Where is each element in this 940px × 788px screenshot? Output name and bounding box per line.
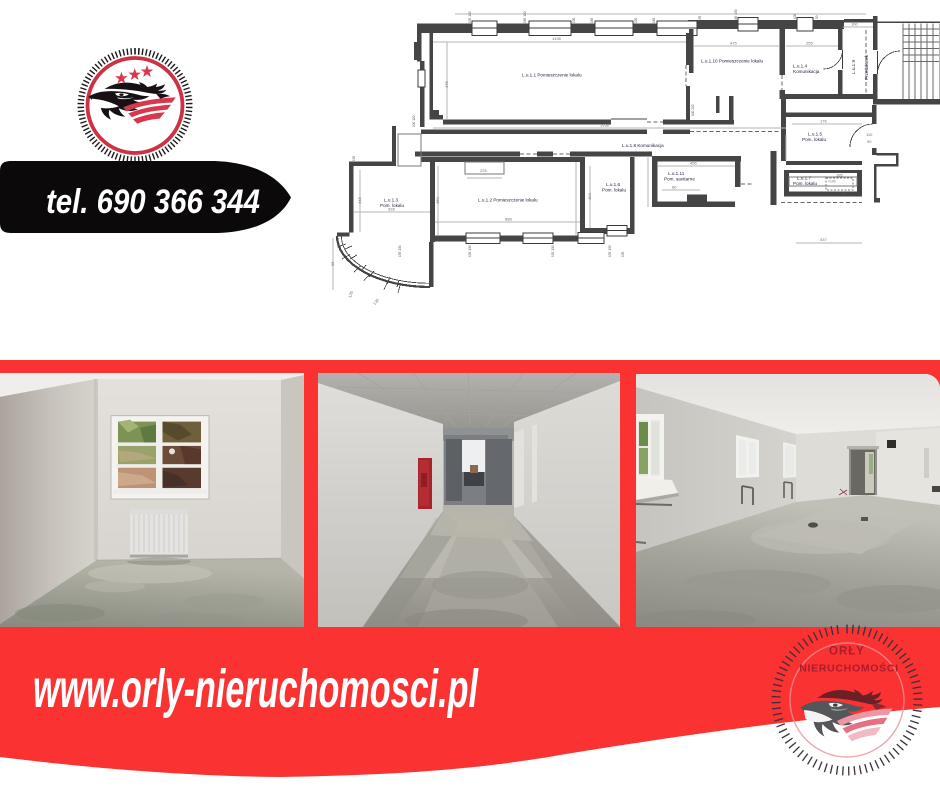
svg-text:Pom. lokalu: Pom. lokalu — [802, 137, 826, 142]
svg-text:90: 90 — [867, 139, 872, 144]
svg-text:165 130: 165 130 — [734, 9, 738, 21]
svg-text:100: 100 — [793, 13, 797, 19]
svg-text:448: 448 — [357, 197, 362, 204]
svg-text:437: 437 — [820, 237, 827, 242]
svg-text:+100: +100 — [828, 180, 836, 184]
svg-text:NIERUCHOMOŚCI: NIERUCHOMOŚCI — [799, 662, 899, 675]
svg-text:L.u.1.11: L.u.1.11 — [668, 171, 685, 176]
svg-text:L.u.1.2 Pomieszczenie lokalu: L.u.1.2 Pomieszczenie lokalu — [478, 198, 538, 203]
svg-text:135: 135 — [347, 290, 354, 299]
svg-text:110: 110 — [866, 132, 873, 137]
svg-text:L.u.1.4: L.u.1.4 — [793, 64, 807, 69]
svg-text:404: 404 — [587, 193, 592, 200]
svg-text:225: 225 — [480, 168, 487, 173]
svg-text:165: 165 — [652, 17, 656, 23]
svg-text:100 220: 100 220 — [691, 104, 695, 116]
svg-text:135 130: 135 130 — [551, 245, 555, 257]
svg-text:135 130: 135 130 — [608, 245, 612, 257]
svg-text:Pom. sanitarne: Pom. sanitarne — [664, 177, 695, 182]
svg-text:176: 176 — [820, 119, 827, 124]
svg-text:95: 95 — [330, 261, 335, 266]
svg-text:Pom. lokalu: Pom. lokalu — [380, 203, 404, 208]
svg-text:165 130: 165 130 — [523, 11, 527, 23]
svg-text:100 120: 100 120 — [412, 115, 416, 127]
svg-text:www.orly-nieruchomosci.pl: www.orly-nieruchomosci.pl — [33, 659, 479, 719]
svg-text:255: 255 — [806, 41, 813, 46]
svg-text:L.u.1.6: L.u.1.6 — [606, 182, 620, 187]
svg-text:160: 160 — [851, 22, 858, 27]
svg-text:135 130: 135 130 — [468, 245, 472, 257]
svg-text:475: 475 — [444, 81, 449, 88]
svg-text:130: 130 — [372, 297, 381, 306]
svg-text:50: 50 — [815, 15, 819, 19]
svg-text:130: 130 — [572, 17, 576, 23]
svg-text:L.u.1.8 Komunikacja: L.u.1.8 Komunikacja — [622, 143, 664, 148]
svg-text:165: 165 — [590, 17, 594, 23]
svg-text:135: 135 — [621, 251, 625, 257]
svg-text:135 130: 135 130 — [398, 245, 402, 257]
svg-text:L.u.1.3: L.u.1.3 — [384, 198, 398, 203]
svg-text:1938: 1938 — [600, 123, 610, 128]
svg-text:L.u.1.10 Pomieszczenie lokalu: L.u.1.10 Pomieszczenie lokalu — [701, 59, 763, 64]
svg-text:475: 475 — [730, 41, 737, 46]
svg-text:ORŁY: ORŁY — [829, 646, 865, 658]
svg-text:888: 888 — [505, 217, 512, 222]
svg-text:Pom. lokalu: Pom. lokalu — [793, 181, 817, 186]
svg-text:130: 130 — [634, 17, 638, 23]
svg-text:155: 155 — [842, 191, 846, 197]
svg-text:Komunikacja: Komunikacja — [793, 69, 820, 74]
svg-text:L.u.1.7: L.u.1.7 — [797, 176, 811, 181]
svg-text:L.u.1.9: L.u.1.9 — [851, 60, 856, 74]
svg-text:195: 195 — [836, 173, 843, 178]
svg-text:135: 135 — [698, 15, 702, 21]
svg-text:139: 139 — [352, 155, 356, 161]
svg-text:tel. 690 366 344: tel. 690 366 344 — [46, 183, 260, 221]
svg-text:80: 80 — [672, 185, 677, 190]
svg-text:Przedsionek: Przedsionek — [864, 54, 869, 80]
svg-text:460: 460 — [435, 197, 440, 204]
svg-text:135 130: 135 130 — [468, 11, 472, 23]
svg-text:L.u.1.1 Pomieszczenie lokalu: L.u.1.1 Pomieszczenie lokalu — [522, 73, 582, 78]
svg-text:L.u.1.5: L.u.1.5 — [808, 132, 822, 137]
svg-text:456: 456 — [690, 161, 697, 166]
svg-text:Pom. lokalu: Pom. lokalu — [602, 188, 626, 193]
svg-text:1435: 1435 — [552, 36, 562, 41]
